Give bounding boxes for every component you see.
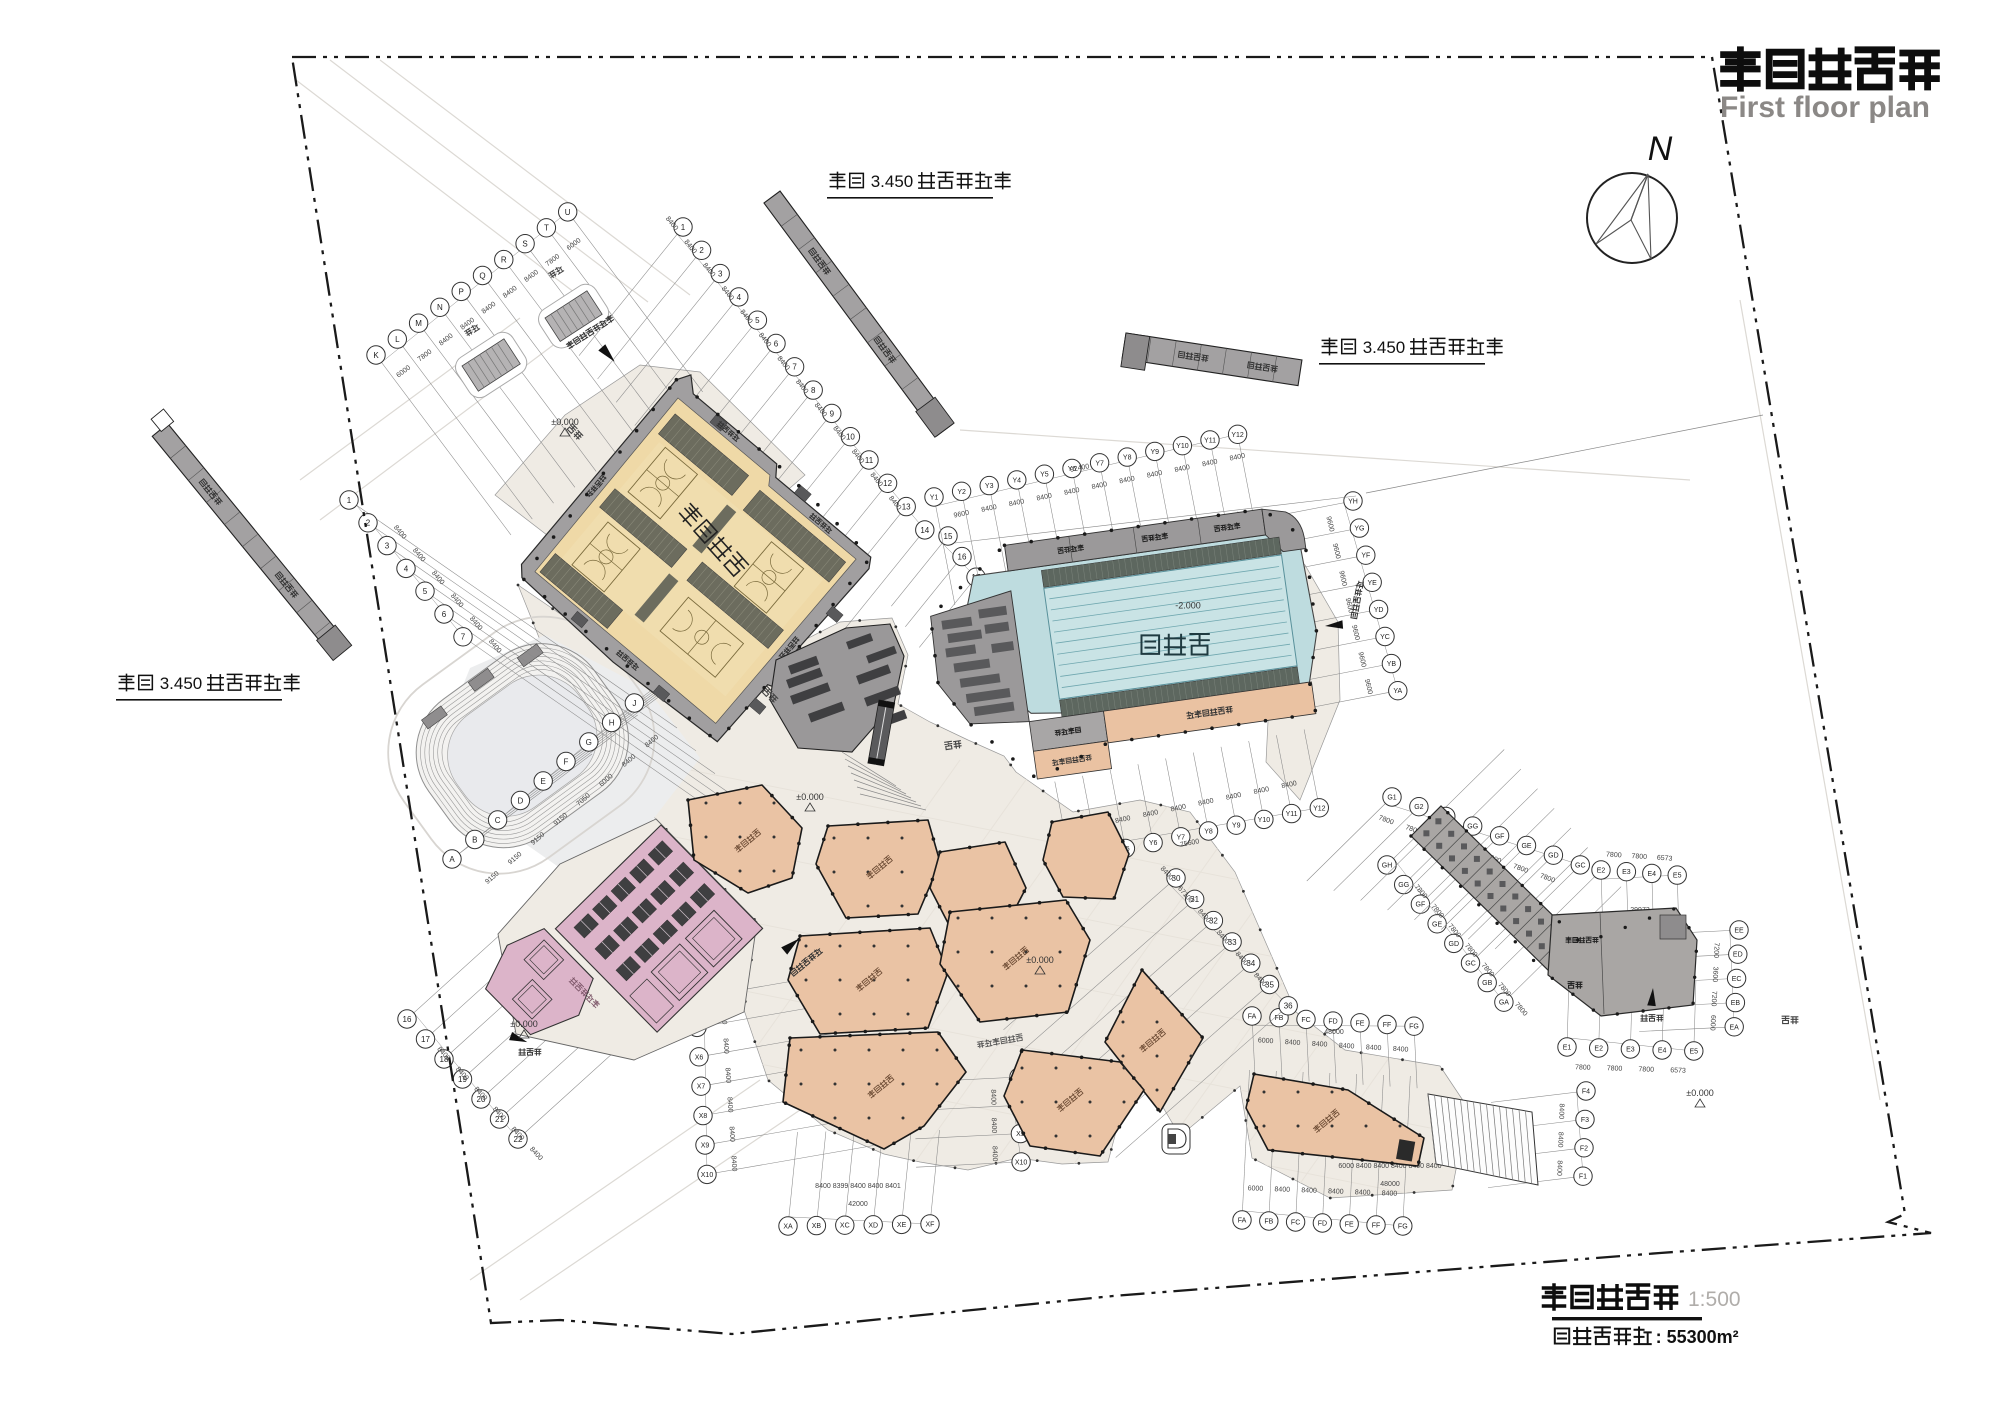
svg-text:6000: 6000: [1708, 1015, 1716, 1031]
svg-text:4: 4: [404, 564, 409, 573]
svg-text:3.450: 3.450: [160, 674, 203, 693]
svg-text:C: C: [495, 816, 501, 825]
svg-text:FD: FD: [1318, 1221, 1327, 1228]
svg-text:9: 9: [830, 409, 835, 418]
svg-text:N: N: [437, 303, 443, 312]
svg-text:1: 1: [681, 223, 686, 232]
svg-text:YA: YA: [1393, 688, 1402, 695]
svg-text:F4: F4: [1582, 1089, 1590, 1096]
svg-text:P: P: [459, 287, 464, 296]
svg-text:U: U: [565, 208, 571, 217]
svg-text:M: M: [415, 319, 422, 328]
svg-text:EA: EA: [1730, 1024, 1740, 1031]
svg-text:Y11: Y11: [1204, 438, 1216, 445]
svg-text:15: 15: [944, 532, 953, 541]
svg-text:XA: XA: [783, 1224, 793, 1231]
svg-text:±0.000: ±0.000: [1686, 1088, 1713, 1098]
svg-text:16: 16: [958, 553, 967, 562]
svg-text:FG: FG: [1409, 1024, 1419, 1031]
svg-text:48000: 48000: [1380, 1181, 1400, 1188]
svg-text:GF: GF: [1416, 902, 1426, 909]
svg-text:FF: FF: [1372, 1223, 1381, 1230]
svg-text:8400: 8400: [1312, 1041, 1328, 1049]
svg-text:D: D: [518, 796, 524, 805]
svg-text:J: J: [632, 699, 636, 708]
svg-text:XC: XC: [840, 1223, 850, 1230]
svg-text:YC: YC: [1380, 634, 1390, 641]
svg-text:E4: E4: [1648, 871, 1657, 878]
svg-text:E3: E3: [1626, 1047, 1635, 1054]
svg-text:8400: 8400: [727, 1126, 735, 1142]
svg-text:8400: 8400: [1557, 1103, 1565, 1119]
svg-text:Y4: Y4: [1013, 477, 1022, 484]
svg-text:8400: 8400: [1339, 1043, 1355, 1051]
svg-text:11: 11: [865, 456, 874, 465]
svg-text:EB: EB: [1731, 1000, 1741, 1007]
svg-text:10: 10: [846, 433, 855, 442]
svg-text:GG: GG: [1398, 882, 1409, 889]
svg-text:EC: EC: [1732, 976, 1742, 983]
svg-text:Y10: Y10: [1258, 817, 1271, 824]
svg-text:G1: G1: [1387, 795, 1396, 802]
svg-text:H: H: [609, 718, 615, 727]
svg-text:8400: 8400: [989, 1089, 996, 1105]
svg-text:T: T: [544, 224, 549, 233]
svg-text:8400: 8400: [721, 1038, 729, 1054]
svg-text:N: N: [1648, 130, 1673, 168]
svg-text:7800: 7800: [1631, 853, 1647, 861]
svg-text:Y1: Y1: [930, 495, 939, 502]
svg-text:±0.000: ±0.000: [1026, 955, 1053, 965]
svg-text:Y11: Y11: [1286, 811, 1298, 818]
svg-text:YH: YH: [1348, 499, 1358, 506]
svg-text:8400: 8400: [1285, 1039, 1301, 1047]
svg-text:17: 17: [421, 1035, 430, 1044]
svg-text:E3: E3: [1622, 869, 1631, 876]
svg-text:Q: Q: [479, 271, 485, 280]
svg-text:8400: 8400: [1355, 1189, 1371, 1197]
svg-text:F2: F2: [1580, 1145, 1588, 1152]
svg-text:±0.000: ±0.000: [796, 792, 823, 802]
svg-text:A: A: [449, 855, 455, 864]
svg-text:L: L: [395, 335, 400, 344]
svg-text:7800: 7800: [1607, 1065, 1623, 1072]
svg-text:FA: FA: [1238, 1218, 1247, 1225]
svg-text:E4: E4: [1658, 1048, 1667, 1055]
svg-text:8400: 8400: [1366, 1044, 1382, 1052]
svg-text:ED: ED: [1733, 952, 1743, 959]
svg-text:GH: GH: [1382, 863, 1393, 870]
svg-text:G2: G2: [1414, 804, 1423, 811]
svg-text:Y8: Y8: [1204, 829, 1213, 836]
svg-text:3: 3: [718, 270, 723, 279]
svg-text:7200: 7200: [1712, 942, 1720, 958]
svg-text:GD: GD: [1449, 941, 1460, 948]
svg-text:E2: E2: [1594, 1046, 1603, 1053]
svg-text:6000: 6000: [1248, 1185, 1264, 1193]
svg-text:8400: 8400: [1556, 1132, 1564, 1148]
svg-text:FE: FE: [1345, 1222, 1354, 1229]
svg-text:3600: 3600: [1711, 966, 1719, 982]
svg-text:13: 13: [902, 503, 911, 512]
svg-text:R: R: [501, 256, 507, 265]
svg-text:8400: 8400: [990, 1118, 997, 1134]
svg-text:Y7: Y7: [1095, 460, 1104, 467]
svg-text:YE: YE: [1368, 580, 1378, 587]
svg-text:X9: X9: [701, 1143, 710, 1150]
svg-text:E5: E5: [1673, 873, 1682, 880]
svg-text:FD: FD: [1328, 1019, 1337, 1026]
svg-text:1:500: 1:500: [1688, 1288, 1741, 1311]
svg-text:EE: EE: [1734, 928, 1744, 935]
svg-text:GE: GE: [1432, 921, 1442, 928]
svg-text:6573: 6573: [1657, 855, 1673, 863]
svg-text:7800: 7800: [1606, 851, 1622, 859]
svg-text:XB: XB: [812, 1223, 822, 1230]
svg-text:Y8: Y8: [1123, 455, 1132, 462]
svg-text:Y9: Y9: [1151, 449, 1160, 456]
svg-text:8400: 8400: [725, 1097, 733, 1113]
svg-text:GG: GG: [1467, 824, 1478, 831]
svg-text:4: 4: [737, 293, 742, 302]
svg-text:3.450: 3.450: [1363, 338, 1406, 357]
svg-text:F3: F3: [1581, 1117, 1589, 1124]
svg-text:E5: E5: [1690, 1049, 1699, 1056]
svg-text:Y5: Y5: [1040, 472, 1049, 479]
svg-text:6000: 6000: [1258, 1037, 1274, 1045]
svg-text:8400: 8400: [1301, 1187, 1317, 1195]
svg-text:8400: 8400: [1555, 1160, 1563, 1176]
svg-text:First floor plan: First floor plan: [1720, 91, 1930, 124]
svg-text:16: 16: [403, 1015, 412, 1024]
svg-text:42000: 42000: [848, 1201, 868, 1208]
svg-text:Y2: Y2: [957, 489, 966, 496]
svg-text:G: G: [586, 738, 592, 747]
svg-text:GC: GC: [1575, 862, 1586, 869]
svg-text:FB: FB: [1264, 1219, 1273, 1226]
svg-text:S: S: [522, 240, 527, 249]
svg-text:Y6: Y6: [1149, 840, 1158, 847]
svg-text:FA: FA: [1248, 1014, 1257, 1021]
svg-text:F: F: [564, 757, 569, 766]
svg-text:E: E: [541, 777, 546, 786]
svg-text:5: 5: [423, 587, 428, 596]
svg-text:7: 7: [461, 633, 466, 642]
svg-text:FC: FC: [1301, 1017, 1310, 1024]
svg-text:X7: X7: [697, 1084, 706, 1091]
svg-text:8: 8: [811, 386, 816, 395]
svg-text:8400: 8400: [991, 1146, 998, 1162]
svg-text:±0.000: ±0.000: [510, 1019, 537, 1029]
svg-text:8400: 8400: [1393, 1046, 1409, 1054]
svg-text:Y3: Y3: [985, 483, 994, 490]
svg-text:X8: X8: [699, 1113, 708, 1120]
svg-text:YB: YB: [1387, 661, 1397, 668]
svg-text:7200: 7200: [1710, 991, 1718, 1007]
svg-text:X10: X10: [701, 1172, 714, 1179]
svg-text:1: 1: [347, 496, 352, 505]
svg-text:YD: YD: [1374, 607, 1384, 614]
svg-text:Y9: Y9: [1232, 823, 1241, 830]
svg-text:3: 3: [385, 542, 390, 551]
svg-text:7800: 7800: [1575, 1064, 1591, 1071]
svg-text:36: 36: [1284, 1002, 1293, 1011]
svg-text:GD: GD: [1548, 853, 1559, 860]
svg-text:7: 7: [792, 363, 797, 372]
svg-text:GB: GB: [1482, 980, 1492, 987]
svg-text:8400: 8400: [1382, 1190, 1398, 1198]
svg-text:FG: FG: [1398, 1224, 1408, 1231]
svg-text:-2.000: -2.000: [1175, 600, 1201, 610]
svg-text:E2: E2: [1597, 868, 1606, 875]
svg-text:5: 5: [755, 316, 760, 325]
svg-text:14: 14: [920, 526, 929, 535]
svg-text:F1: F1: [1579, 1174, 1587, 1181]
svg-text:FF: FF: [1383, 1022, 1392, 1029]
svg-text:XD: XD: [868, 1222, 878, 1229]
svg-text:8400: 8400: [1328, 1188, 1344, 1196]
svg-text:XE: XE: [897, 1222, 907, 1229]
svg-text:K: K: [373, 351, 379, 360]
svg-text:6: 6: [442, 610, 447, 619]
svg-text:6573: 6573: [1670, 1067, 1686, 1074]
svg-text:X6: X6: [695, 1054, 704, 1061]
svg-text:Y12: Y12: [1313, 805, 1326, 812]
svg-text:B: B: [472, 835, 477, 844]
svg-text:GE: GE: [1521, 843, 1531, 850]
svg-text:X10: X10: [1015, 1159, 1028, 1166]
svg-text:2: 2: [699, 246, 704, 255]
svg-text:GF: GF: [1495, 833, 1505, 840]
svg-text:Y10: Y10: [1176, 443, 1189, 450]
svg-text:FC: FC: [1291, 1220, 1300, 1227]
svg-text:12: 12: [883, 479, 892, 488]
svg-text:Y12: Y12: [1231, 432, 1244, 439]
svg-text:3.450: 3.450: [871, 172, 914, 191]
svg-text:48000: 48000: [1324, 1029, 1344, 1036]
svg-text:8400 8399 8400 8400 84: 8400 8399 8400 8400 8401: [815, 1183, 901, 1190]
svg-text:8400: 8400: [729, 1156, 737, 1172]
svg-text:YF: YF: [1361, 553, 1370, 560]
svg-text:6: 6: [774, 339, 779, 348]
svg-text:: 55300m²: : 55300m²: [1656, 1327, 1739, 1347]
svg-text:GA: GA: [1499, 1000, 1509, 1007]
svg-text:8400: 8400: [1274, 1186, 1290, 1194]
svg-text:6000 8400 8400 8400 8400: 6000 8400 8400 8400 8400 8400: [1338, 1163, 1441, 1170]
svg-text:YG: YG: [1354, 526, 1364, 533]
svg-text:GC: GC: [1465, 961, 1476, 968]
svg-text:7800: 7800: [1638, 1066, 1654, 1073]
svg-text:FE: FE: [1356, 1020, 1365, 1027]
svg-text:XF: XF: [926, 1222, 935, 1229]
svg-text:E1: E1: [1563, 1045, 1572, 1052]
svg-text:8400: 8400: [723, 1067, 731, 1083]
